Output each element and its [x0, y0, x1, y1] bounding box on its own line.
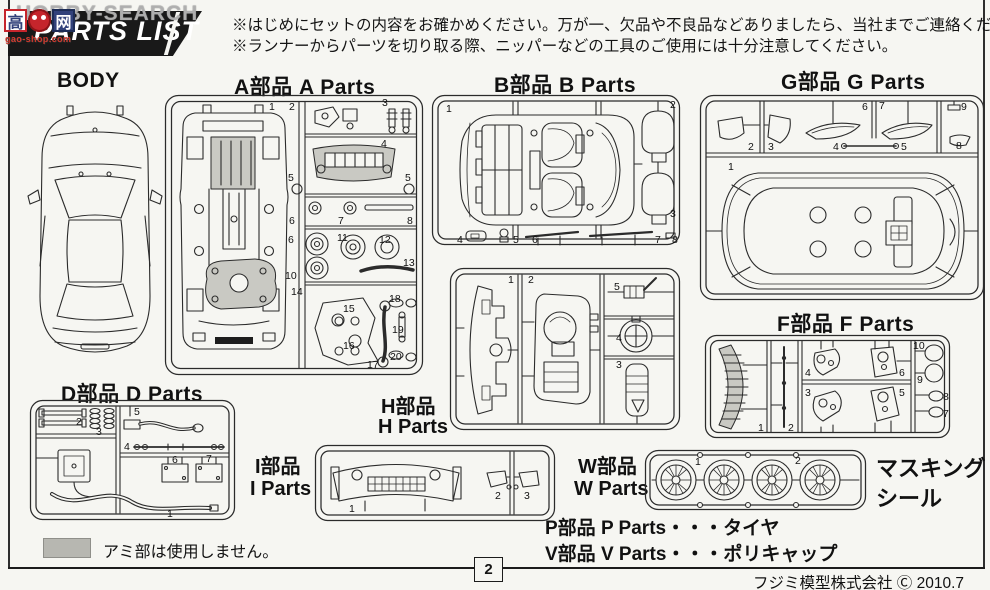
- ami-note: アミ部は使用しません。: [103, 538, 278, 562]
- masking-label-line2: シール: [876, 481, 942, 513]
- watermark-url: gao-shop.com: [5, 34, 71, 44]
- p-parts-line: P部品 P Parts・・・タイヤ: [545, 513, 780, 540]
- a-chassis-part: [180, 105, 288, 349]
- w-parts-label-en: W Parts: [574, 478, 648, 501]
- wheel: [704, 460, 744, 500]
- part-number: 4: [124, 441, 130, 453]
- part-number: 5: [901, 141, 907, 153]
- f-parts-sprue: 1 2 3 4 5 6 7 8 9 10: [703, 333, 952, 440]
- b-seat-parts: [642, 102, 674, 224]
- parts-list-page: PARTS LIST HOBBY-SEARCH 高 网 gao-shop.com…: [0, 0, 990, 590]
- part-number: 2: [788, 422, 794, 434]
- copyright-text: フジミ模型株式会社 Ⓒ 2010.7: [753, 571, 964, 590]
- left-page-border: [8, 0, 10, 568]
- d-exhaust-pipe-part: [52, 494, 218, 511]
- part-number: 1: [508, 274, 514, 286]
- part-number: 5: [288, 172, 294, 184]
- page-number: 2: [484, 561, 492, 578]
- part-number: 2: [76, 416, 82, 428]
- part-number: 4: [457, 234, 463, 246]
- f-grille-part: [719, 345, 767, 429]
- a-part-numbers: 1 2 3 4 5 5 6 7 8 6 11 12 10 13 14 15 16…: [269, 97, 415, 371]
- w-parts-sprue: 1 2: [643, 448, 868, 512]
- part-number: 7: [943, 408, 949, 420]
- b-small-parts: [466, 229, 675, 245]
- part-number: 3: [96, 426, 102, 438]
- part-number: 2: [670, 99, 676, 111]
- part-number: 9: [917, 374, 923, 386]
- part-number: 5: [405, 172, 411, 184]
- part-number: 8: [956, 140, 962, 152]
- f-rod-part: [771, 347, 798, 427]
- watermark-logo: 高 网: [4, 9, 75, 32]
- wheel: [752, 460, 792, 500]
- part-number: 10: [913, 340, 925, 352]
- part-number: 18: [389, 293, 401, 305]
- b-interior-tub-part: [460, 115, 634, 225]
- g-small-parts: [718, 101, 970, 149]
- part-number: 6: [862, 101, 868, 113]
- header-notes: ※はじめにセットの内容をお確かめください。万が一、欠品や不良品などありましたら、…: [232, 15, 990, 57]
- part-number: 8: [407, 215, 413, 227]
- wheel: [800, 460, 840, 500]
- b-runners: [513, 102, 642, 238]
- i-part-numbers: 1 2 3: [349, 490, 530, 515]
- part-number: 1: [349, 503, 355, 515]
- part-number: 8: [943, 391, 949, 403]
- part-number: 1: [167, 508, 173, 520]
- part-number: 11: [337, 232, 348, 244]
- d-axle-part: [134, 444, 224, 450]
- part-number: 17: [367, 359, 379, 371]
- body-label: BODY: [57, 69, 120, 93]
- part-number: 3: [805, 387, 811, 399]
- part-number: 19: [392, 324, 404, 336]
- v-parts-line: V部品 V Parts・・・ポリキャップ: [545, 539, 837, 566]
- logo-char-2: 网: [52, 9, 75, 32]
- d-parts-sprue: 1 2 3 4 5 6 7: [28, 398, 237, 522]
- part-number: 2: [748, 141, 754, 153]
- part-number: 4: [381, 138, 387, 150]
- part-number: 13: [403, 257, 415, 269]
- part-number: 5: [134, 406, 140, 418]
- ami-gray-swatch: [43, 538, 91, 558]
- body-car-drawing: [15, 96, 175, 368]
- part-number: 4: [616, 332, 622, 344]
- note-line-2: ※ランナーからパーツを切り取る際、ニッパーなどの工具のご使用には十分注意してくだ…: [232, 36, 990, 57]
- part-number: 5: [614, 281, 620, 293]
- part-number: 14: [291, 286, 303, 298]
- part-number: 2: [495, 490, 501, 502]
- part-number: 2: [528, 274, 534, 286]
- page-number-box: 2: [474, 557, 503, 582]
- part-number: 6: [289, 215, 295, 227]
- h-parts-label-en: H Parts: [378, 416, 448, 439]
- part-number: 20: [390, 351, 402, 363]
- part-number: 2: [795, 455, 801, 467]
- h-dash-cowl-part: [470, 286, 511, 414]
- f-part-numbers: 1 2 3 4 5 6 7 8 9 10: [758, 340, 949, 434]
- h-runners: [456, 275, 674, 423]
- logo-mascot-icon: [28, 9, 51, 32]
- part-number: 1: [269, 101, 275, 113]
- i-mirror-parts: [487, 471, 539, 489]
- part-number: 3: [768, 141, 774, 153]
- part-number: 7: [338, 215, 344, 227]
- h-parts-label-jp: H部品: [381, 390, 435, 419]
- part-number: 15: [343, 303, 355, 315]
- part-number: 16: [343, 340, 355, 352]
- d-runners: [36, 407, 229, 513]
- w-parts-label-jp: W部品: [578, 450, 637, 479]
- i-parts-label-jp: I部品: [255, 450, 301, 479]
- i-runners: [510, 452, 514, 514]
- note-line-1: ※はじめにセットの内容をお確かめください。万が一、欠品や不良品などありましたら、…: [232, 15, 990, 36]
- part-number: 12: [379, 234, 391, 246]
- part-number: 6: [288, 234, 294, 246]
- g-parts-sprue: 1 2 3 4 5 6 7 8 9: [698, 93, 986, 302]
- h-parts-sprue: 1 2 3 4 5: [448, 266, 682, 432]
- part-number: 4: [805, 367, 811, 379]
- masking-label-line1: マスキング: [876, 451, 985, 483]
- part-number: 7: [655, 234, 661, 246]
- d-box-part: [36, 450, 94, 497]
- h-dash-assembly-part: [534, 294, 598, 404]
- part-number: 3: [524, 490, 530, 502]
- logo-char-1: 高: [4, 9, 27, 32]
- part-number: 1: [446, 103, 452, 115]
- i-parts-sprue: 1 2 3: [313, 443, 557, 523]
- b-parts-sprue: 1 2 3 4 5 6 7 8: [430, 93, 682, 247]
- part-number: 1: [728, 161, 734, 173]
- part-number: 9: [961, 101, 967, 113]
- part-number: 4: [833, 141, 839, 153]
- part-number: 3: [670, 208, 676, 220]
- part-number: 2: [289, 101, 295, 113]
- g-roof-frame-part: [722, 173, 964, 289]
- g-parts-label: G部品 G Parts: [781, 66, 925, 96]
- part-number: 5: [899, 387, 905, 399]
- i-parts-label-en: I Parts: [250, 478, 311, 501]
- part-number: 3: [382, 97, 388, 109]
- part-number: 3: [616, 359, 622, 371]
- part-number: 6: [532, 234, 538, 246]
- f-bracket-parts: [813, 341, 911, 432]
- part-number: 6: [899, 367, 905, 379]
- part-number: 7: [879, 100, 885, 112]
- part-number: 10: [285, 270, 297, 282]
- part-number: 5: [513, 234, 519, 246]
- a-parts-sprue: 1 2 3 4 5 5 6 7 8 6 11 12 10 13 14 15 16…: [163, 93, 425, 377]
- wheel: [656, 460, 696, 500]
- h-small-parts: [608, 278, 674, 423]
- part-number: 6: [172, 454, 178, 466]
- part-number: 1: [695, 456, 701, 468]
- part-number: 8: [672, 234, 678, 246]
- part-number: 7: [206, 453, 212, 465]
- d-plate-parts: [162, 457, 222, 482]
- part-number: 1: [758, 422, 764, 434]
